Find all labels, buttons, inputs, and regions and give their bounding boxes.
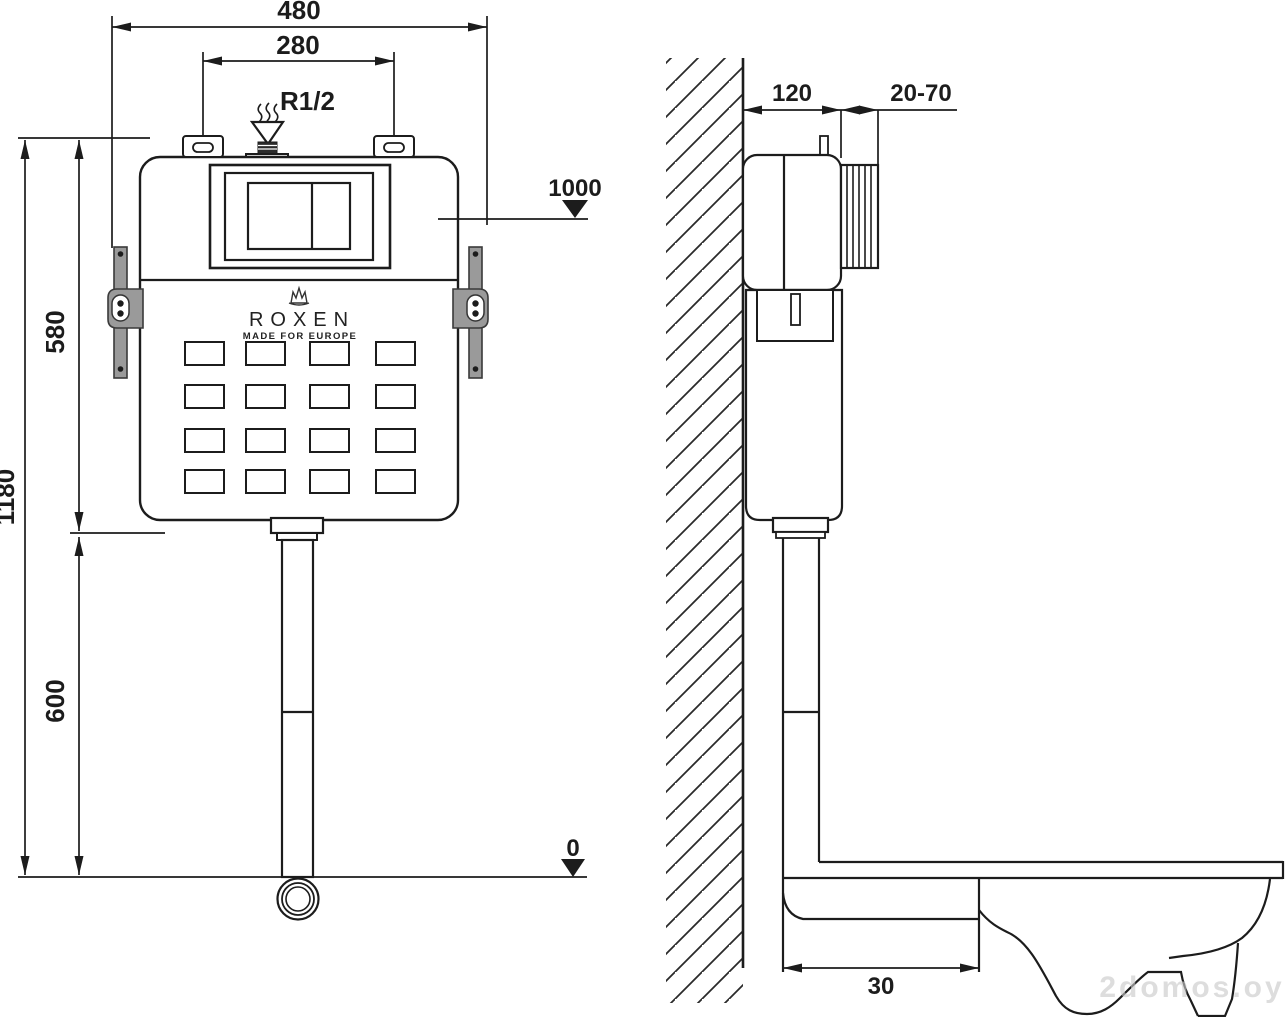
level-marker-zero: 0 [561, 835, 585, 877]
brand-tagline: MADE FOR EUROPE [243, 331, 357, 342]
brand-name: ROXEN [249, 309, 355, 331]
dim-280-label: 280 [276, 30, 319, 60]
level-marker-1000: 1000 [438, 175, 602, 219]
steam-line-icon [274, 104, 278, 122]
steam-line-icon [266, 103, 270, 121]
mount-tab-right-hole [384, 143, 404, 152]
dim-120-label: 120 [772, 80, 812, 107]
side-view: 120 20-70 [666, 58, 1283, 1016]
dim-600-label: 600 [40, 679, 70, 722]
dimension-plate-adjustment: 20-70 [841, 80, 952, 165]
thread-stub [258, 142, 277, 154]
dim-1180-label: 1180 [0, 469, 20, 525]
installation-diagram: 480 280 R1/2 [0, 0, 1288, 1017]
mount-tab-left-hole [193, 143, 213, 152]
watermark: 2domos.oy [1099, 971, 1284, 1004]
rail-screw [118, 366, 124, 372]
clamp-slot [467, 295, 484, 321]
tank-side [743, 155, 841, 290]
dimension-outlet-offset: 30 [783, 964, 979, 1001]
shaft-slot [791, 294, 800, 325]
drawing-canvas: 480 280 R1/2 [0, 0, 1288, 1017]
clamp-slot [112, 295, 129, 321]
steam-line-icon [258, 104, 262, 122]
level-triangle-icon [562, 200, 588, 218]
mounting-rail-left [108, 247, 143, 378]
dim-2070-label: 20-70 [890, 80, 951, 107]
rail-screw [118, 251, 124, 257]
dim-30-label: 30 [868, 973, 895, 1000]
level-0-label: 0 [566, 835, 579, 862]
dual-flush-buttons [248, 183, 350, 249]
front-view: 480 280 R1/2 [0, 0, 602, 920]
elbow-curve [783, 893, 979, 919]
flush-pipe-front [271, 518, 323, 920]
inlet-stub [820, 136, 828, 156]
inlet-thread-label: R1/2 [280, 86, 335, 116]
cistern-side-profile [743, 136, 878, 520]
water-inlet-r12: R1/2 [246, 86, 335, 161]
flush-plate-window [210, 165, 390, 268]
level-1000-label: 1000 [548, 175, 601, 202]
wall-hatch [666, 58, 743, 1003]
flush-plate-spacer [841, 165, 878, 268]
funnel-icon [252, 122, 283, 144]
rail-screw [473, 251, 479, 257]
dimension-mount-spacing: 280 [203, 30, 394, 138]
dim-580-label: 580 [40, 310, 70, 353]
drain-outlet-circle [278, 879, 319, 920]
wall-section [666, 58, 743, 1003]
dimension-outlet-drop: 600 [40, 537, 84, 875]
dim-480-label: 480 [277, 0, 320, 25]
rail-screw [473, 366, 479, 372]
flush-pipe-side [773, 518, 1283, 972]
